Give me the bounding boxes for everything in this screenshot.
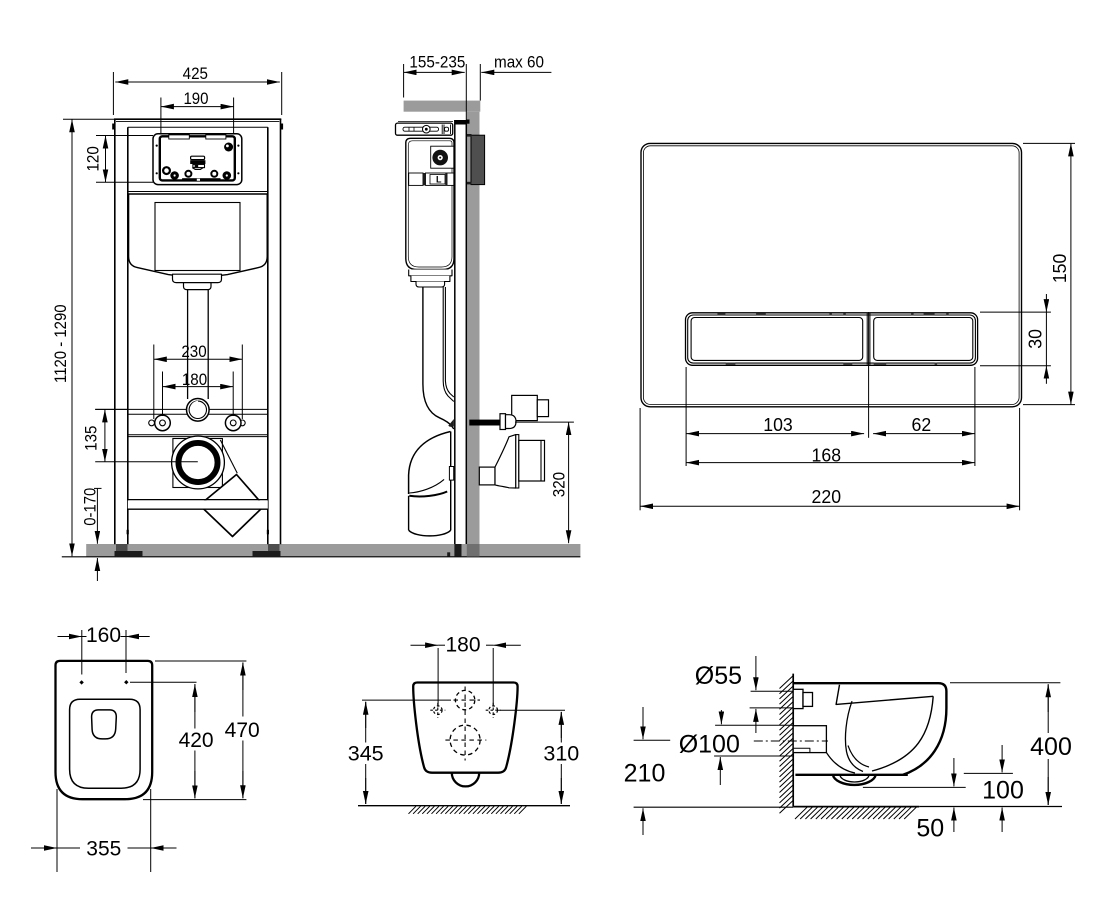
svg-text:155-235: 155-235: [409, 52, 465, 71]
svg-text:L: L: [436, 175, 442, 185]
svg-text:62: 62: [912, 414, 932, 435]
svg-text:135: 135: [81, 426, 100, 451]
svg-text:190: 190: [183, 89, 208, 108]
svg-text:1120 - 1290: 1120 - 1290: [51, 304, 70, 383]
svg-text:Ø55: Ø55: [695, 662, 742, 690]
svg-text:425: 425: [183, 64, 208, 83]
svg-text:168: 168: [812, 444, 842, 465]
svg-text:30: 30: [1025, 329, 1046, 349]
svg-text:210: 210: [624, 760, 666, 788]
svg-text:310: 310: [543, 742, 579, 766]
svg-text:103: 103: [763, 414, 793, 435]
svg-text:230: 230: [181, 342, 206, 361]
svg-text:Ø100: Ø100: [679, 731, 740, 759]
svg-text:355: 355: [86, 838, 121, 861]
svg-text:120: 120: [83, 146, 102, 171]
svg-text:150: 150: [1049, 254, 1070, 284]
svg-text:220: 220: [812, 486, 842, 507]
svg-text:320: 320: [550, 472, 569, 497]
svg-text:100: 100: [982, 777, 1024, 805]
svg-text:180: 180: [182, 370, 207, 389]
svg-text:400: 400: [1030, 733, 1072, 761]
svg-text:50: 50: [916, 815, 944, 843]
svg-text:max 60: max 60: [494, 52, 544, 71]
svg-text:470: 470: [225, 719, 260, 742]
svg-text:345: 345: [348, 742, 384, 766]
svg-text:160: 160: [86, 624, 121, 647]
svg-text:420: 420: [179, 729, 214, 752]
svg-text:180: 180: [445, 634, 480, 657]
svg-text:0-170: 0-170: [80, 488, 99, 526]
